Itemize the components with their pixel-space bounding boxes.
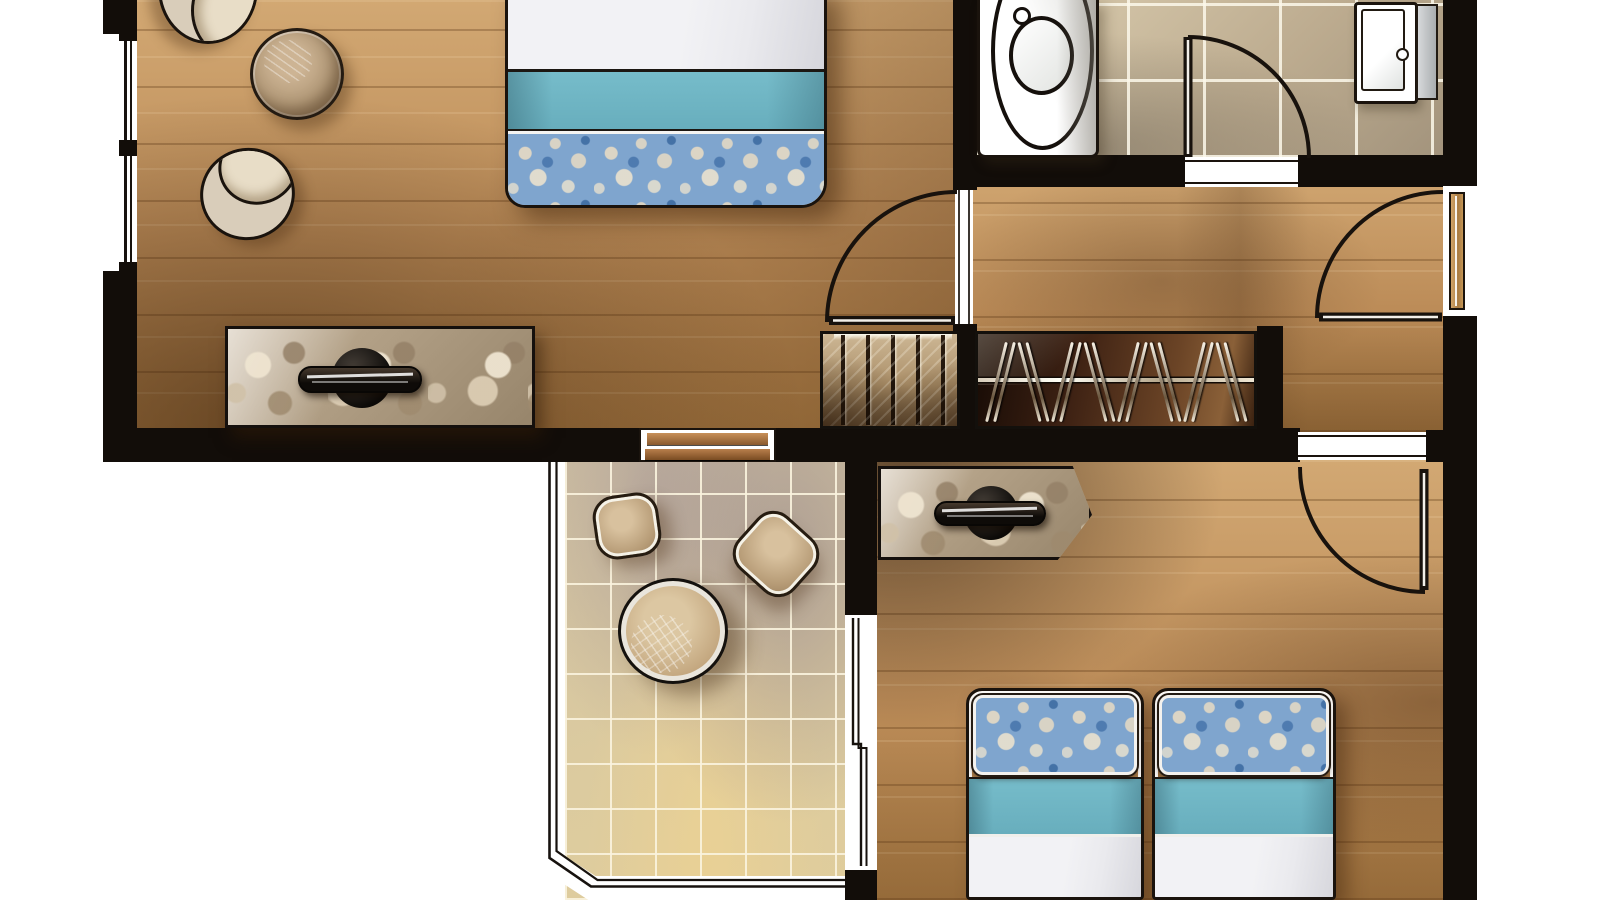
wall-right-top: [1443, 0, 1477, 192]
staircase: [820, 331, 960, 429]
bathtub: [977, 0, 1099, 158]
single-bed-left: [966, 688, 1144, 900]
clothes-hanger: [1091, 341, 1109, 423]
shower-side-panel: [1416, 4, 1438, 100]
window-mullion: [119, 262, 137, 271]
bed-floral-blanket: [508, 131, 824, 207]
wall-bathroom-bottom-left: [953, 155, 1185, 187]
wall-balcony-right-upper: [845, 462, 877, 620]
bathtub-drain: [1013, 7, 1031, 25]
wall-bedroom1-bottom-left: [103, 428, 639, 462]
entry-door-leaf: [1449, 192, 1465, 310]
french-door-threshold: [639, 428, 776, 462]
double-bed: [505, 0, 827, 208]
bed-sheet: [969, 837, 1141, 900]
wall-bathroom-bottom-right: [1298, 155, 1445, 187]
wall-balcony-right-lower: [845, 866, 877, 900]
clothes-hanger: [1157, 341, 1175, 423]
clothes-hanger: [1190, 341, 1208, 423]
wall-closet-stub: [1257, 326, 1283, 432]
wardrobe-closet: [975, 331, 1257, 429]
stair-tread: [866, 335, 870, 425]
bedroom2-door-threshold: [1298, 432, 1426, 460]
bedroom1-door-jamb: [955, 190, 973, 324]
wall-right-bottom: [1443, 462, 1477, 900]
bathtub-basin: [1009, 16, 1074, 95]
patio-table: [618, 578, 728, 684]
wall-bedroom1-bottom-right: [776, 428, 1300, 462]
clothes-hanger: [1025, 341, 1043, 423]
window-wall-left: [103, 34, 137, 271]
clothes-hanger: [1223, 341, 1241, 423]
stair-tread: [841, 335, 845, 425]
bed-sheet: [1155, 837, 1333, 900]
bed-teal-band: [969, 777, 1141, 837]
bathroom-door-threshold: [1185, 157, 1298, 187]
bed-teal-band: [1155, 777, 1333, 837]
window-mullion: [119, 34, 137, 41]
shower-drain: [1396, 48, 1409, 61]
bed-floral-pillow: [1159, 695, 1329, 775]
round-pouf: [250, 28, 344, 120]
stair-tread: [941, 335, 945, 425]
wall-right-middle: [1443, 313, 1477, 462]
wall-left-top: [103, 0, 137, 34]
bed-floral-pillow: [973, 695, 1137, 775]
desk-chair-back: [298, 366, 422, 393]
window-mullion: [119, 140, 137, 156]
stair-tread: [891, 335, 895, 425]
desk-chair-back: [934, 501, 1046, 526]
bed-sheet: [508, 0, 824, 69]
floor-plan: [0, 0, 1600, 900]
patio-chair: [590, 490, 664, 563]
clothes-hanger: [992, 341, 1010, 423]
clothes-hanger: [1058, 341, 1076, 423]
balcony-sliding-window: [845, 615, 877, 870]
bed-teal-band: [508, 69, 824, 131]
shower-unit: [1354, 2, 1440, 108]
stair-tread: [916, 335, 920, 425]
clothes-hanger: [1124, 341, 1142, 423]
single-bed-right: [1152, 688, 1336, 900]
entry-door-opening: [1443, 186, 1477, 316]
closet-rail: [978, 378, 1254, 382]
